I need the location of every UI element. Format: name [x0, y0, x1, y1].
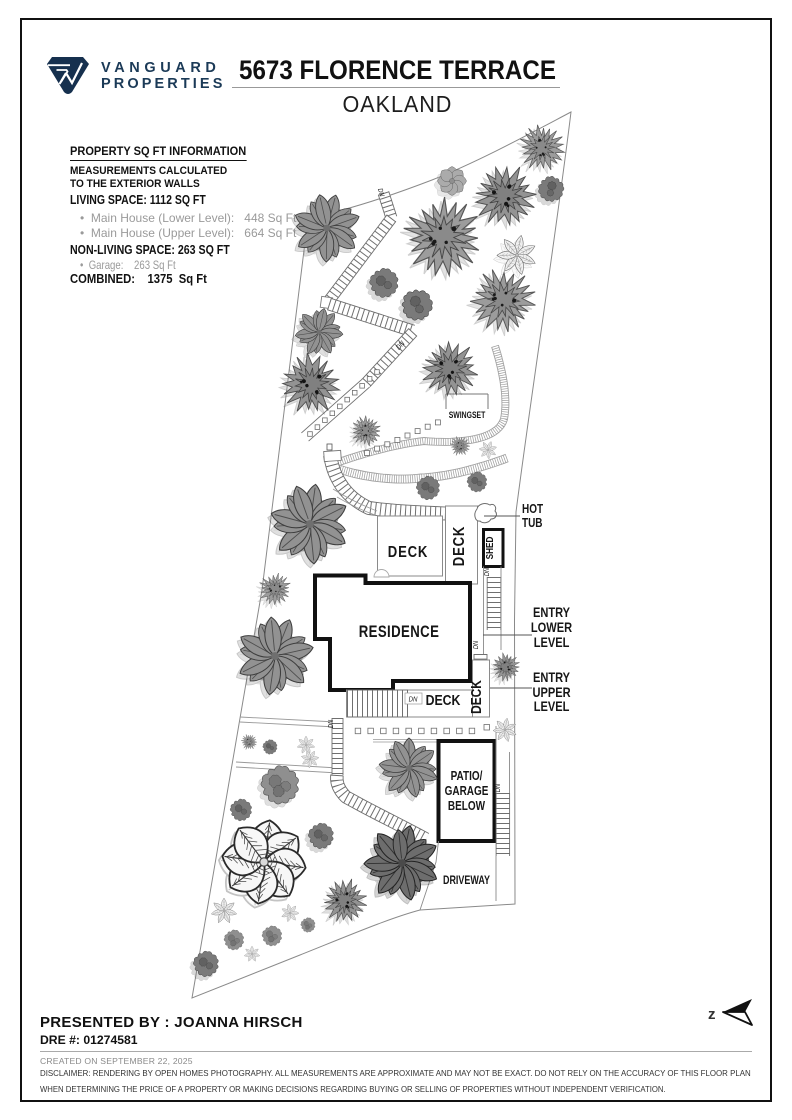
svg-text:DN: DN — [409, 696, 418, 704]
svg-text:DN: DN — [484, 568, 492, 577]
svg-text:BELOW: BELOW — [448, 800, 485, 813]
svg-text:DRIVEWAY: DRIVEWAY — [443, 875, 490, 887]
svg-text:DECK: DECK — [388, 544, 428, 561]
svg-text:ENTRY: ENTRY — [533, 670, 571, 685]
svg-text:DN: DN — [473, 641, 481, 650]
svg-text:LEVEL: LEVEL — [534, 635, 570, 650]
svg-text:DECK: DECK — [426, 692, 461, 708]
svg-text:TUB: TUB — [522, 517, 543, 530]
svg-text:SHED: SHED — [484, 536, 495, 559]
svg-text:DN: DN — [495, 784, 503, 793]
svg-text:ENTRY: ENTRY — [533, 605, 571, 620]
svg-text:RESIDENCE: RESIDENCE — [359, 623, 440, 642]
svg-text:HOT: HOT — [522, 503, 543, 516]
svg-text:DN: DN — [328, 720, 336, 729]
svg-text:PATIO/: PATIO/ — [451, 770, 483, 783]
svg-text:DECK: DECK — [468, 680, 484, 714]
svg-text:SWINGSET: SWINGSET — [449, 410, 486, 420]
svg-text:z: z — [708, 1006, 716, 1023]
svg-text:LOWER: LOWER — [531, 620, 572, 635]
svg-text:GARAGE: GARAGE — [445, 785, 489, 798]
svg-text:UPPER: UPPER — [532, 685, 570, 700]
svg-text:DECK: DECK — [451, 526, 468, 566]
svg-text:LEVEL: LEVEL — [534, 699, 570, 714]
